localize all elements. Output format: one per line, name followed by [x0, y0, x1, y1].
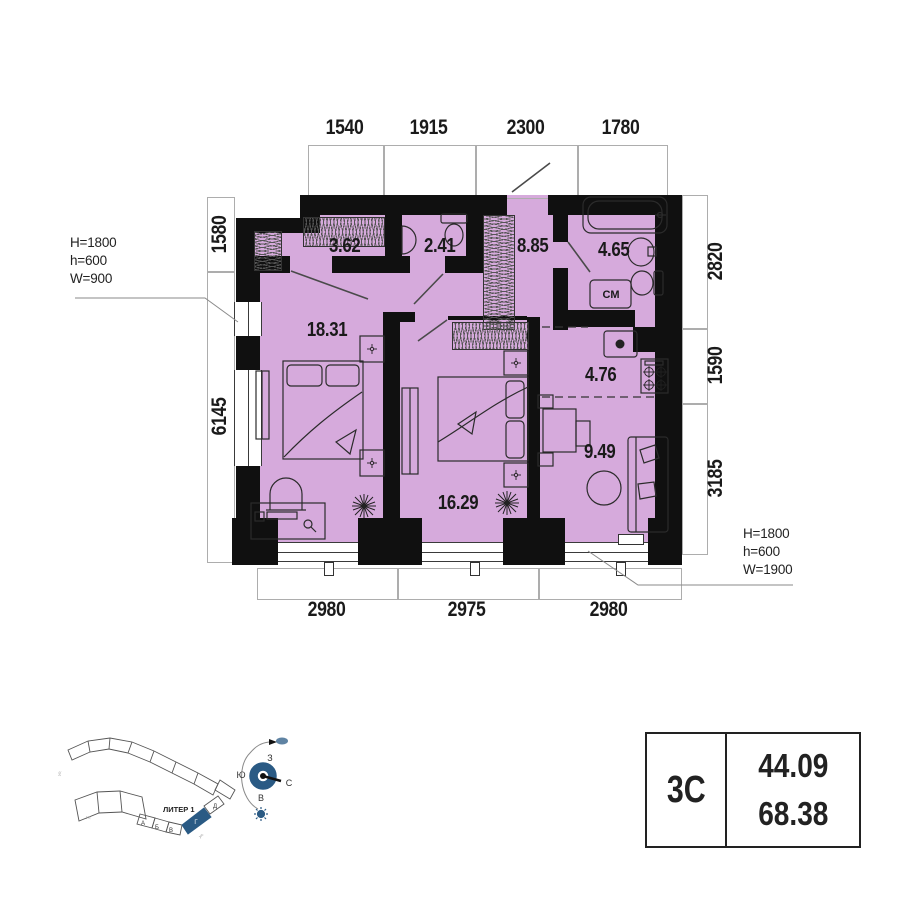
block-letter-a: А [141, 821, 145, 827]
sun-path-arrow [269, 739, 277, 745]
compass-west: З [267, 753, 272, 763]
dim-top-3: 2300 [481, 116, 571, 140]
site-plan: ЛИТЕР 1 А Б В Г Д ул. ул. ул. [52, 728, 252, 863]
apartment-info-table: 3С 44.09 68.38 [645, 732, 861, 848]
dim-bottom-1: 2980 [282, 598, 372, 622]
window-annotation-left: H=1800 h=600 W=900 [70, 234, 116, 288]
compass-south: Ю [236, 770, 245, 780]
compass-east: В [258, 793, 264, 803]
total-area-value: 68.38 [758, 797, 828, 831]
living-area-value: 44.09 [758, 749, 828, 783]
apartment-type-cell: 3С [647, 734, 727, 846]
apartment-areas-cell: 44.09 68.38 [727, 734, 859, 846]
dim-right-3: 3185 [704, 434, 728, 522]
room-label-living-zone: 9.49 [561, 440, 639, 464]
room-label-wc: 2.41 [401, 234, 479, 258]
street-label-bottom: ул. [86, 814, 92, 820]
window-annotation-bottom-right: H=1800 h=600 W=1900 [743, 525, 792, 579]
dim-right-1: 2820 [704, 217, 728, 305]
dim-top-2: 1915 [384, 116, 474, 140]
apartment-type: 3С [667, 769, 706, 812]
room-label-bedroom2: 16.29 [419, 491, 497, 515]
dim-bottom-2: 2975 [422, 598, 512, 622]
annotation-leaders [75, 298, 793, 585]
room-label-hallway: 8.85 [494, 234, 572, 258]
room-label-bathroom: 4.65 [575, 238, 653, 262]
compass: З Ю С В [228, 733, 313, 858]
dim-top-4: 1780 [576, 116, 666, 140]
dim-right-2: 1590 [704, 321, 728, 409]
block-letter-b: Б [155, 825, 159, 831]
block-letter-d: Д [213, 804, 217, 810]
washing-machine-label: СМ [592, 287, 630, 303]
sunset-marker [276, 738, 288, 745]
room-label-bedroom1: 18.31 [288, 318, 366, 342]
block-letter-v: В [169, 828, 173, 834]
compass-north: С [286, 778, 293, 788]
room-label-kitchen: 4.76 [562, 363, 640, 387]
bedroom1-furniture [251, 336, 384, 539]
dim-left-1: 1580 [208, 190, 232, 278]
dim-left-2: 6145 [208, 372, 232, 460]
site-building-label: ЛИТЕР 1 [163, 805, 195, 814]
floor-plan-sheet: 1540 1915 2300 1780 1580 6145 2820 1590 … [0, 0, 900, 900]
room-label-closet: 3.62 [306, 234, 384, 258]
street-label-left: ул. [56, 770, 62, 776]
dim-bottom-3: 2980 [564, 598, 654, 622]
sun-icon [254, 807, 268, 821]
street-label-right: ул. [198, 832, 205, 839]
dim-top-1: 1540 [300, 116, 390, 140]
